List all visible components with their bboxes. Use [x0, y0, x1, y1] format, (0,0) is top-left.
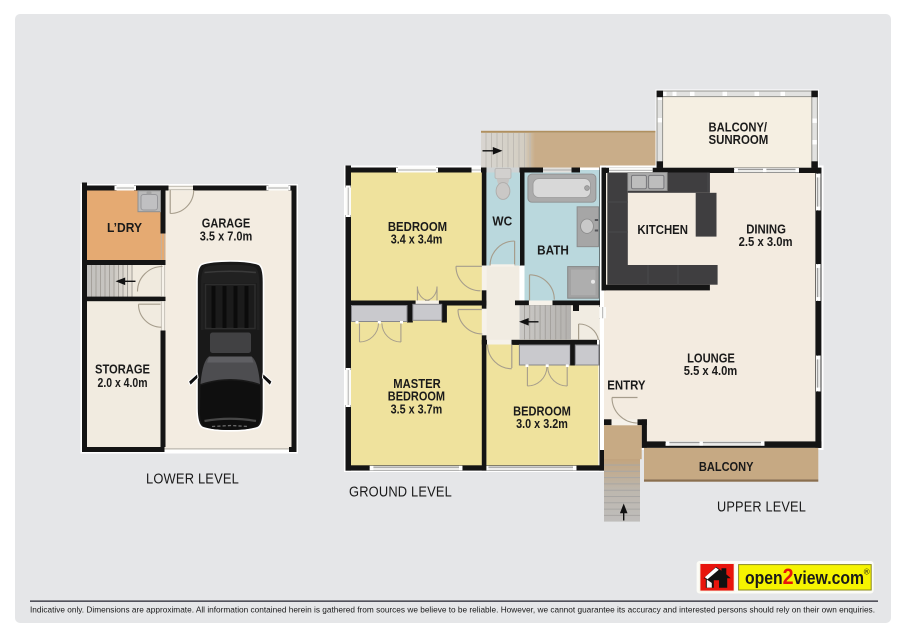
svg-text:ENTRY: ENTRY: [607, 377, 646, 392]
svg-text:BALCONY: BALCONY: [699, 459, 754, 474]
svg-text:KITCHEN: KITCHEN: [637, 222, 688, 237]
svg-text:SUNROOM: SUNROOM: [709, 132, 769, 147]
svg-text:2.5 x 3.0m: 2.5 x 3.0m: [739, 234, 793, 249]
svg-text:LOWER LEVEL: LOWER LEVEL: [146, 471, 239, 487]
svg-text:5.5 x 4.0m: 5.5 x 4.0m: [684, 363, 738, 378]
svg-text:3.5 x 3.7m: 3.5 x 3.7m: [391, 402, 443, 417]
svg-text:2.0 x 4.0m: 2.0 x 4.0m: [98, 375, 148, 390]
svg-text:UPPER LEVEL: UPPER LEVEL: [717, 500, 806, 516]
svg-text:open2view.com: open2view.com: [745, 564, 864, 589]
svg-text:GROUND LEVEL: GROUND LEVEL: [349, 484, 452, 500]
svg-text:BATH: BATH: [537, 243, 569, 258]
svg-text:WC: WC: [492, 213, 512, 228]
svg-text:®: ®: [864, 568, 870, 577]
svg-text:3.0 x 3.2m: 3.0 x 3.2m: [516, 416, 568, 431]
svg-text:3.5 x 7.0m: 3.5 x 7.0m: [200, 228, 253, 243]
svg-text:3.4 x 3.4m: 3.4 x 3.4m: [391, 232, 443, 247]
svg-text:L’DRY: L’DRY: [107, 220, 142, 235]
svg-text:Indicative only. Dimensions ar: Indicative only. Dimensions are approxim…: [30, 605, 875, 615]
